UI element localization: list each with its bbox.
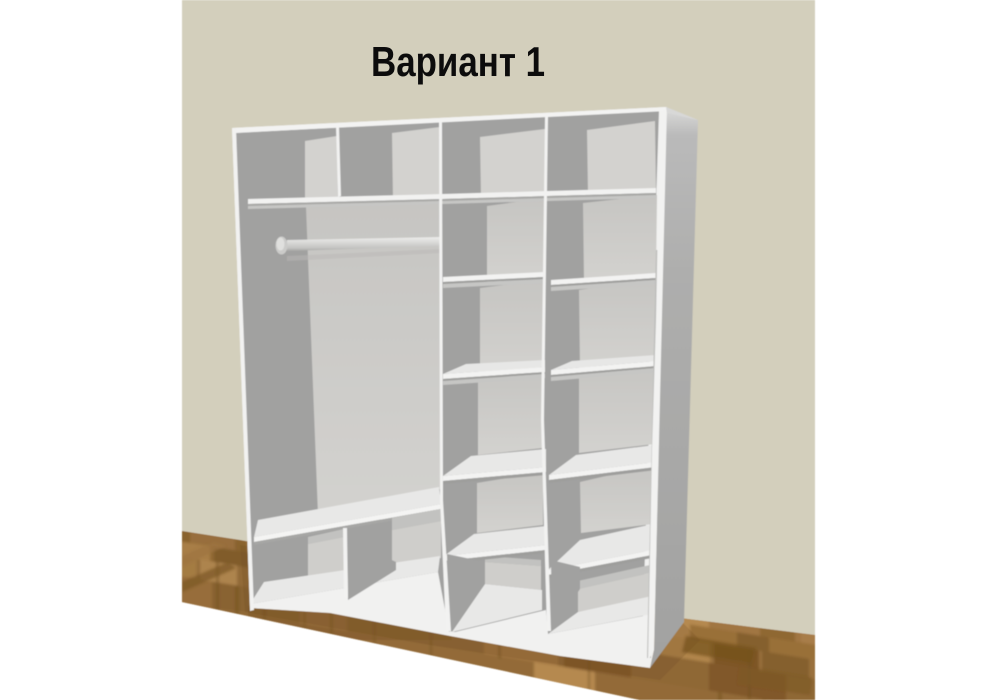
- svg-text:Вариант 1: Вариант 1: [371, 38, 545, 85]
